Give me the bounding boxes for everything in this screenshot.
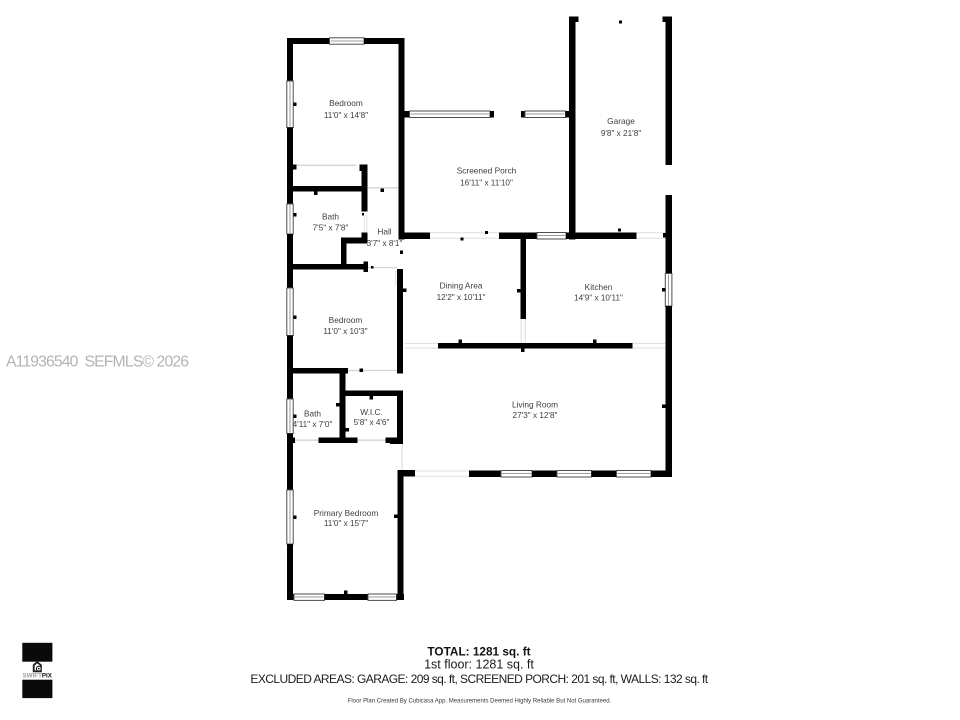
svg-text:11'0" x 10'3": 11'0" x 10'3" [323, 327, 367, 336]
svg-text:4'11" x 7'0": 4'11" x 7'0" [293, 420, 333, 429]
svg-text:Bedroom: Bedroom [329, 315, 363, 325]
svg-text:TOTAL: 1281 sq. ft: TOTAL: 1281 sq. ft [427, 645, 530, 659]
svg-text:11'0" x 15'7": 11'0" x 15'7" [324, 519, 368, 528]
svg-text:1st floor: 1281 sq. ft: 1st floor: 1281 sq. ft [424, 658, 534, 672]
svg-text:Hall: Hall [377, 227, 391, 237]
svg-text:Bedroom: Bedroom [329, 98, 363, 108]
svg-text:12'2" x 10'11": 12'2" x 10'11" [437, 293, 486, 302]
svg-text:Dining Area: Dining Area [440, 281, 483, 291]
svg-text:Garage: Garage [607, 116, 635, 126]
svg-text:EXCLUDED AREAS: GARAGE: 209 sq: EXCLUDED AREAS: GARAGE: 209 sq. ft, SCRE… [250, 672, 708, 686]
svg-text:Primary Bedroom: Primary Bedroom [314, 508, 379, 518]
svg-text:Floor Plan Created By Cubicasa: Floor Plan Created By Cubicasa App. Meas… [348, 699, 612, 705]
svg-text:16'11" x 11'10": 16'11" x 11'10" [460, 179, 513, 188]
svg-text:5'8" x 4'6": 5'8" x 4'6" [354, 418, 390, 427]
svg-text:A11936540 SEFMLS© 2026: A11936540 SEFMLS© 2026 [6, 354, 189, 371]
svg-text:Bath: Bath [304, 409, 321, 419]
svg-text:3'7" x 8'1": 3'7" x 8'1" [367, 239, 403, 248]
svg-text:Screened Porch: Screened Porch [457, 166, 517, 176]
svg-text:Living Room: Living Room [512, 400, 558, 410]
svg-text:7'5" x 7'8": 7'5" x 7'8" [313, 224, 349, 233]
svg-text:9'8" x 21'8": 9'8" x 21'8" [601, 129, 641, 138]
svg-text:Bath: Bath [322, 212, 339, 222]
svg-text:14'9" x 10'11": 14'9" x 10'11" [574, 294, 623, 303]
svg-text:27'3" x 12'8": 27'3" x 12'8" [513, 411, 558, 420]
svg-text:Kitchen: Kitchen [585, 282, 613, 292]
svg-text:SWIFTPIX: SWIFTPIX [23, 673, 53, 680]
svg-text:W.I.C.: W.I.C. [360, 407, 383, 417]
svg-text:11'0" x 14'8": 11'0" x 14'8" [324, 111, 368, 120]
